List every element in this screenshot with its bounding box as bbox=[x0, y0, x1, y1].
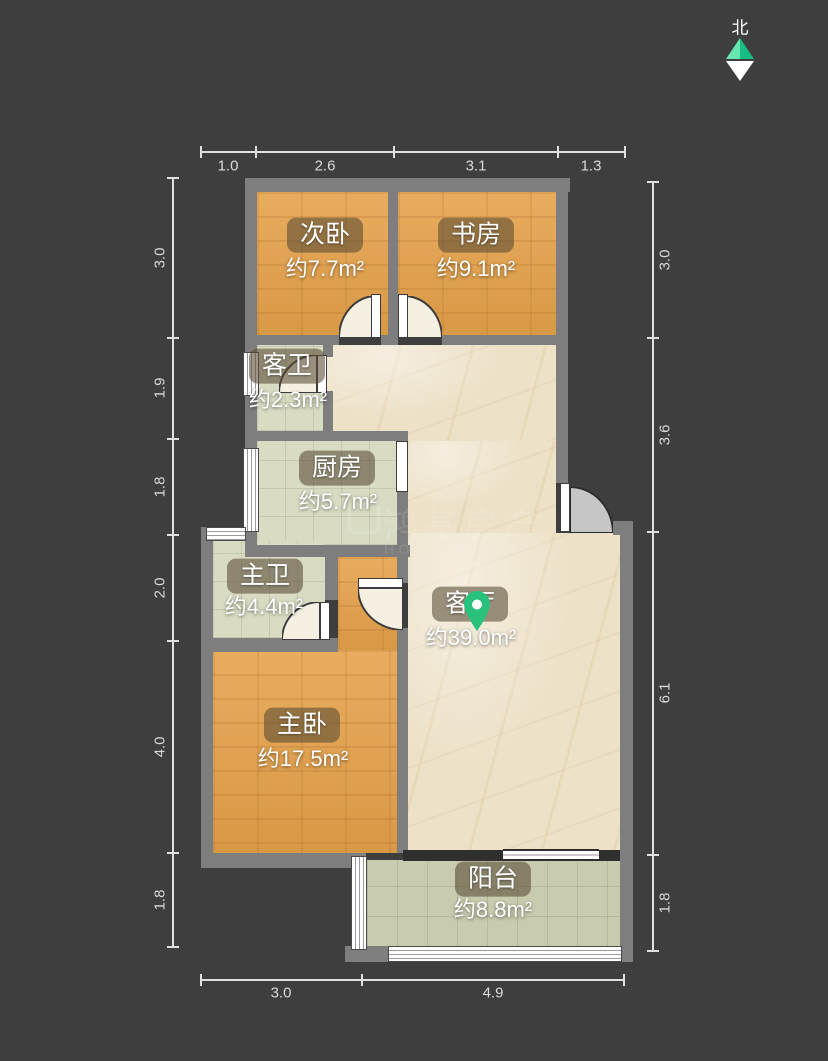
room-label-kewei: 客卫 bbox=[249, 349, 325, 384]
dim-tick bbox=[200, 146, 202, 158]
wall-segment bbox=[397, 628, 408, 853]
wall-segment bbox=[388, 192, 398, 335]
door-leaf-chufang bbox=[396, 441, 408, 492]
dim-tick bbox=[557, 146, 559, 158]
wall-segment bbox=[245, 178, 570, 192]
room-label-ciwo: 次卧 bbox=[287, 218, 363, 253]
dim-label: 3.0 bbox=[152, 248, 169, 269]
dim-tick bbox=[255, 146, 257, 158]
floorplan: 北 bbox=[0, 0, 828, 1061]
dim-tick bbox=[623, 974, 625, 986]
dim-tick bbox=[167, 177, 179, 179]
dim-tick bbox=[624, 146, 626, 158]
dim-tick bbox=[393, 146, 395, 158]
dim-label: 3.0 bbox=[657, 250, 674, 271]
dim-label: 1.9 bbox=[152, 378, 169, 399]
door-arc-zhuwo bbox=[358, 588, 403, 630]
dim-tick bbox=[167, 337, 179, 339]
wall-segment bbox=[381, 335, 398, 345]
dim-label: 1.3 bbox=[581, 158, 602, 175]
dim-label: 4.0 bbox=[152, 737, 169, 758]
dim-line-bottom bbox=[201, 979, 625, 981]
dim-line-right bbox=[652, 182, 654, 952]
watermark-en: HONG JI ESTATE bbox=[384, 541, 560, 557]
dim-line-left bbox=[172, 178, 174, 948]
dim-tick bbox=[647, 854, 659, 856]
dim-label: 4.9 bbox=[483, 985, 504, 1002]
location-pin-icon bbox=[462, 590, 492, 637]
dim-tick bbox=[167, 438, 179, 440]
floor-keting-upper bbox=[327, 345, 556, 441]
north-label: 北 bbox=[732, 14, 749, 39]
wall-segment bbox=[245, 431, 408, 441]
room-label-chufang: 厨房 bbox=[299, 451, 375, 486]
balcony-sliding-door bbox=[503, 849, 599, 861]
dim-tick bbox=[361, 974, 363, 986]
room-area-zhuwei: 约4.4m² bbox=[225, 589, 303, 621]
dim-tick bbox=[647, 531, 659, 533]
dim-tick bbox=[167, 852, 179, 854]
dim-tick bbox=[647, 181, 659, 183]
wall-segment bbox=[403, 850, 505, 861]
floor-keting-lower bbox=[408, 533, 620, 853]
dim-tick bbox=[200, 974, 202, 986]
compass-north-icon bbox=[725, 38, 755, 87]
dim-tick bbox=[167, 534, 179, 536]
dim-label: 6.1 bbox=[657, 683, 674, 704]
dim-line-top bbox=[201, 151, 626, 153]
door-arc-entry bbox=[570, 487, 613, 533]
dim-label: 1.0 bbox=[218, 158, 239, 175]
door-leaf-ciwo bbox=[371, 294, 381, 338]
wall-segment bbox=[556, 178, 568, 483]
wall-segment bbox=[201, 853, 366, 868]
wall-segment bbox=[442, 335, 556, 345]
wall-segment bbox=[201, 527, 213, 868]
room-area-chufang: 约5.7m² bbox=[299, 484, 377, 516]
window bbox=[351, 856, 367, 950]
window bbox=[206, 527, 246, 541]
door-leaf-entry bbox=[560, 483, 570, 532]
dim-tick bbox=[647, 950, 659, 952]
door-leaf-zhuwei bbox=[320, 602, 330, 640]
dim-tick bbox=[167, 640, 179, 642]
room-area-kewei: 约2.3m² bbox=[249, 382, 327, 414]
dim-label: 3.0 bbox=[271, 985, 292, 1002]
wall-segment bbox=[245, 335, 339, 345]
room-area-yangtai: 约8.8m² bbox=[454, 892, 532, 924]
watermark-cn: 鸿基房产 bbox=[384, 498, 544, 547]
dim-tick bbox=[647, 337, 659, 339]
dim-label: 1.8 bbox=[152, 477, 169, 498]
room-area-shufang: 约9.1m² bbox=[437, 251, 515, 283]
dim-label: 2.0 bbox=[152, 578, 169, 599]
window bbox=[243, 448, 259, 532]
wall-segment bbox=[201, 638, 338, 652]
window bbox=[388, 946, 622, 962]
door-leaf-shufang bbox=[398, 294, 408, 338]
room-area-ciwo: 约7.7m² bbox=[286, 251, 364, 283]
room-area-zhuwo: 约17.5m² bbox=[258, 741, 348, 773]
dim-tick bbox=[167, 946, 179, 948]
door-arc-shufang bbox=[404, 296, 442, 338]
dim-label: 1.8 bbox=[152, 890, 169, 911]
wall-segment bbox=[325, 545, 338, 600]
room-label-shufang: 书房 bbox=[438, 218, 514, 253]
wall-segment bbox=[597, 850, 620, 861]
wall-segment bbox=[620, 521, 633, 962]
dim-label: 3.1 bbox=[466, 158, 487, 175]
dim-label: 2.6 bbox=[315, 158, 336, 175]
room-label-zhuwo: 主卧 bbox=[264, 708, 340, 743]
dim-label: 3.6 bbox=[657, 425, 674, 446]
dim-label: 1.8 bbox=[657, 893, 674, 914]
door-leaf-zhuwo bbox=[358, 578, 403, 588]
